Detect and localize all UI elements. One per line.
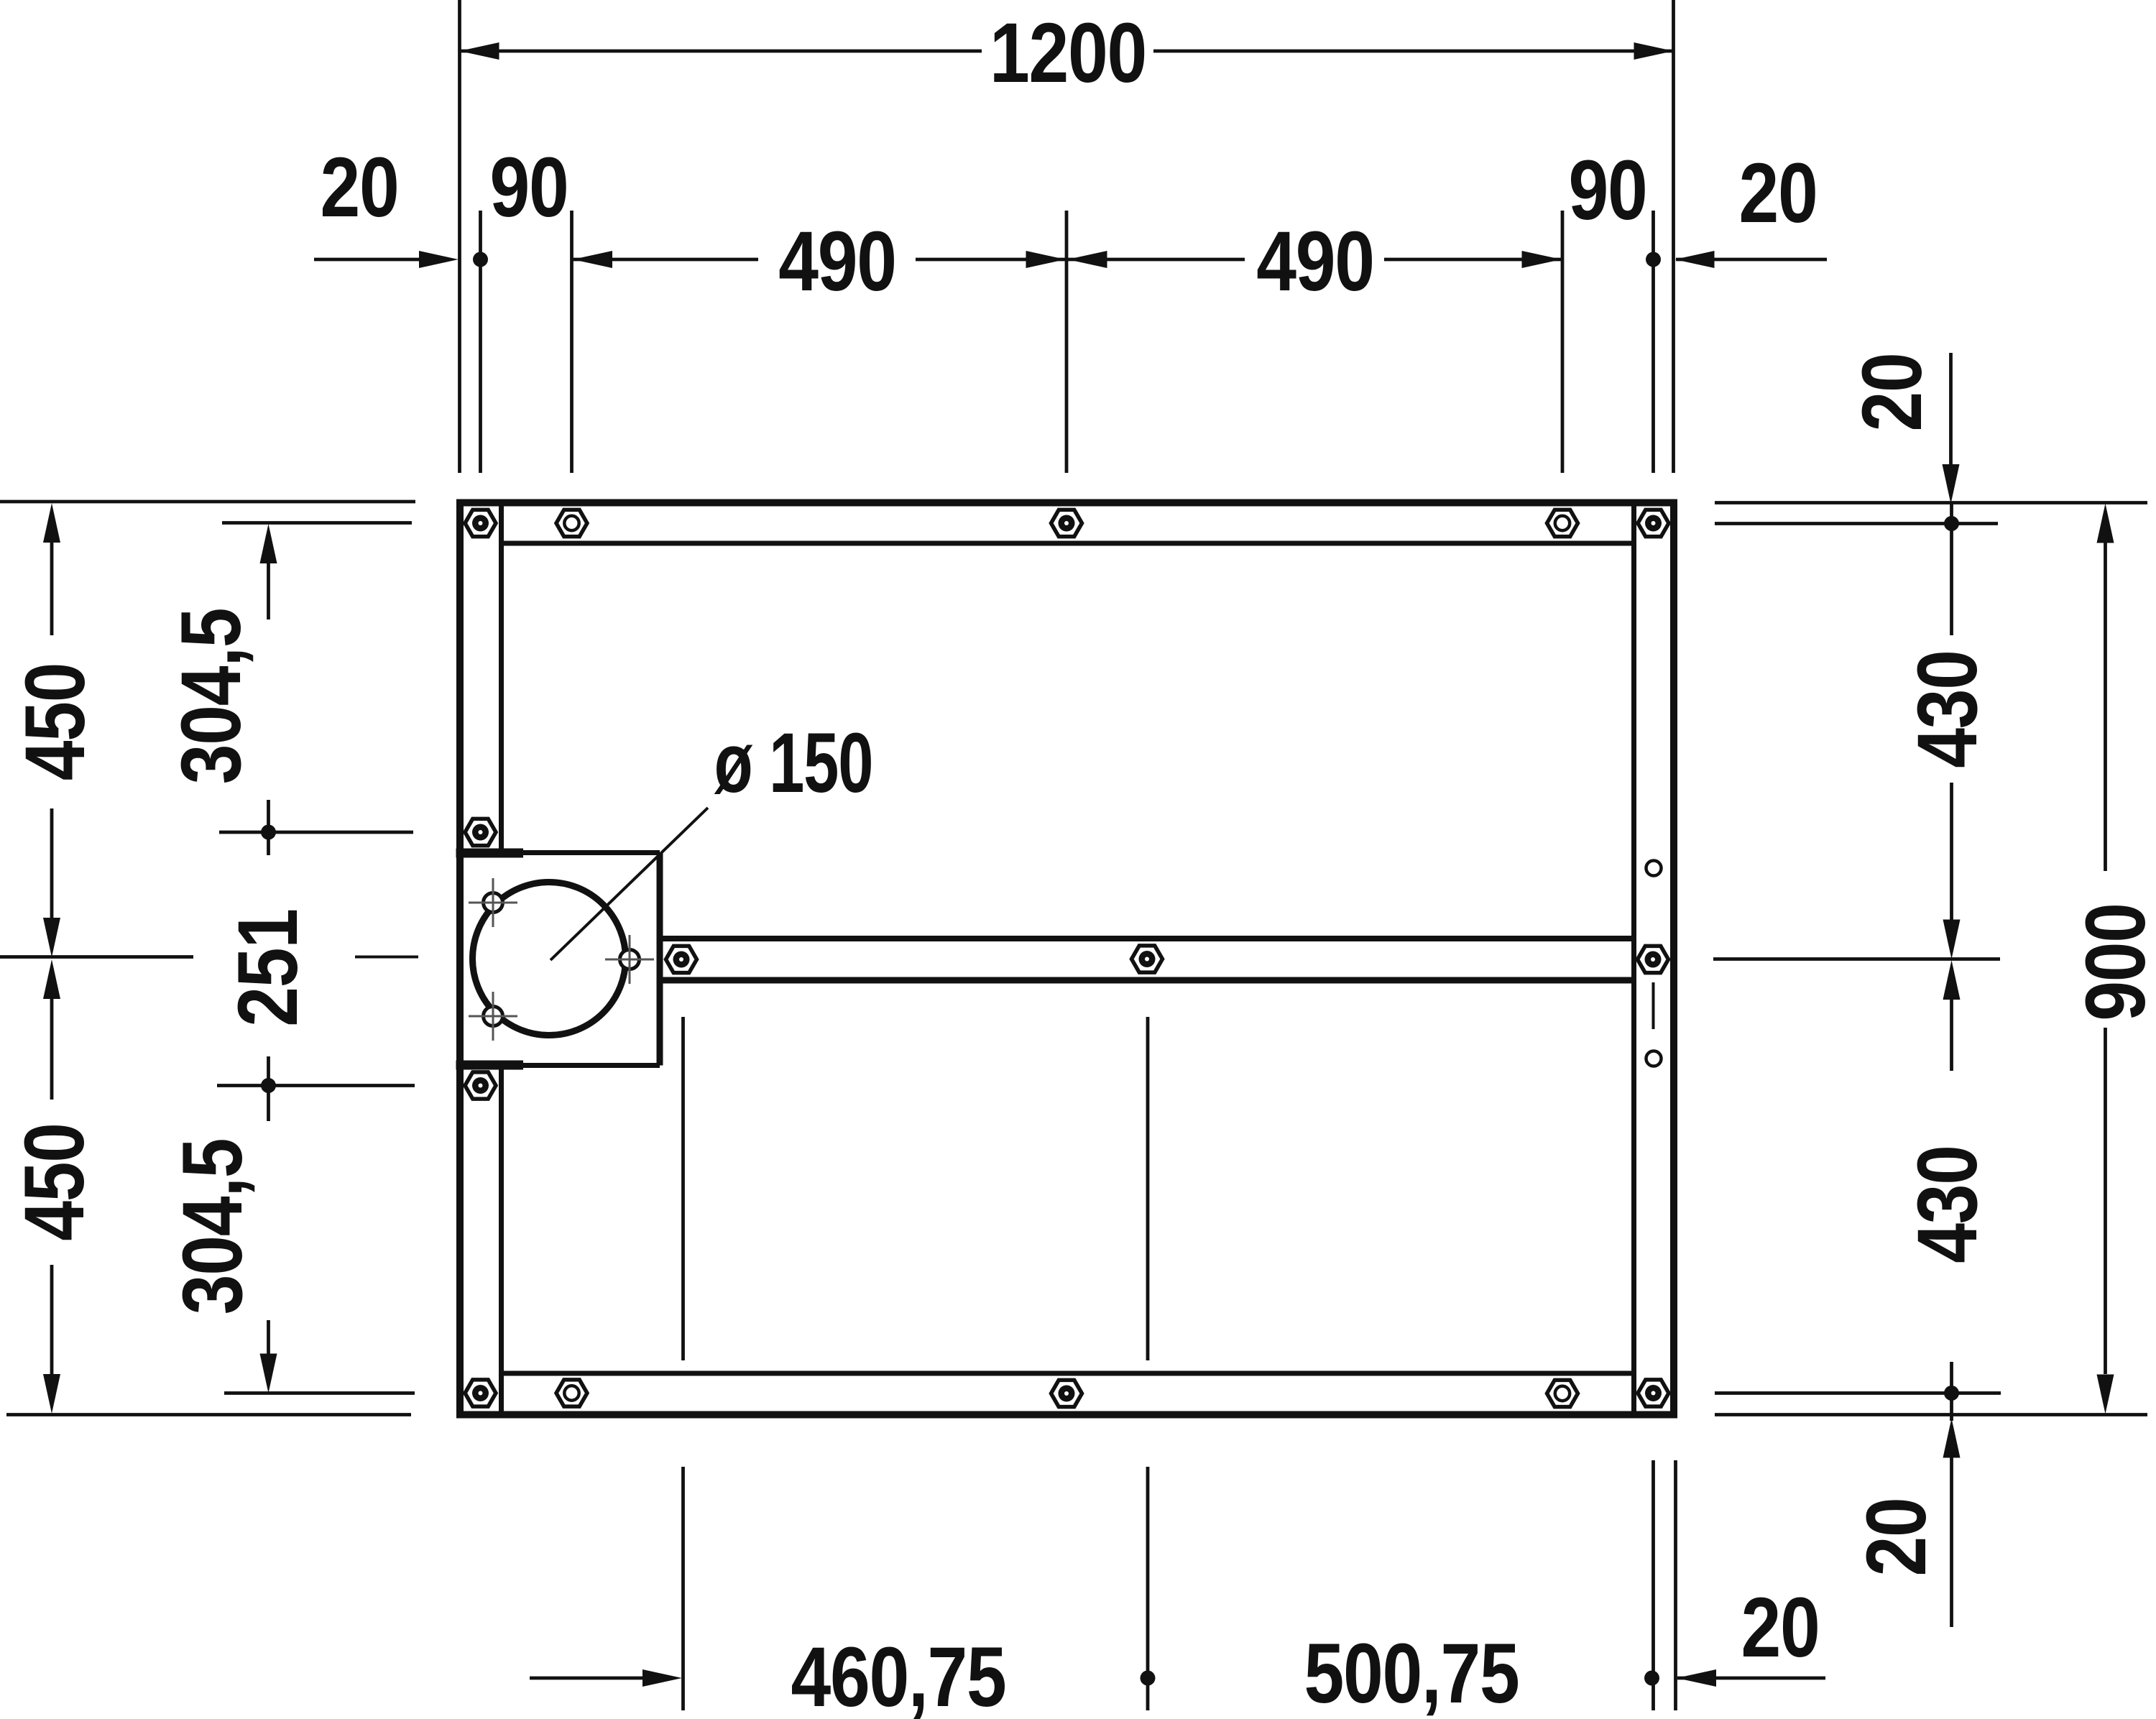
svg-text:304,5: 304,5 [165,1139,259,1315]
svg-text:900: 900 [2068,903,2156,1021]
svg-text:20: 20 [320,140,398,234]
svg-text:490: 490 [778,214,896,308]
svg-text:251: 251 [221,909,315,1027]
svg-text:450: 450 [7,1123,101,1241]
svg-text:490: 490 [1256,214,1374,308]
svg-text:500,75: 500,75 [1304,1626,1519,1719]
svg-text:90: 90 [489,140,568,234]
svg-text:20: 20 [1849,1498,1943,1576]
svg-text:1200: 1200 [990,6,1146,100]
svg-text:450: 450 [8,663,102,781]
svg-text:20: 20 [1845,353,1939,431]
svg-text:430: 430 [1900,650,1994,768]
svg-text:20: 20 [1741,1580,1819,1674]
svg-text:460,75: 460,75 [791,1630,1005,1719]
svg-text:20: 20 [1738,146,1817,240]
svg-text:430: 430 [1900,1146,1994,1263]
svg-text:ø 150: ø 150 [714,716,873,811]
svg-text:304,5: 304,5 [164,609,258,785]
svg-text:90: 90 [1568,143,1646,237]
